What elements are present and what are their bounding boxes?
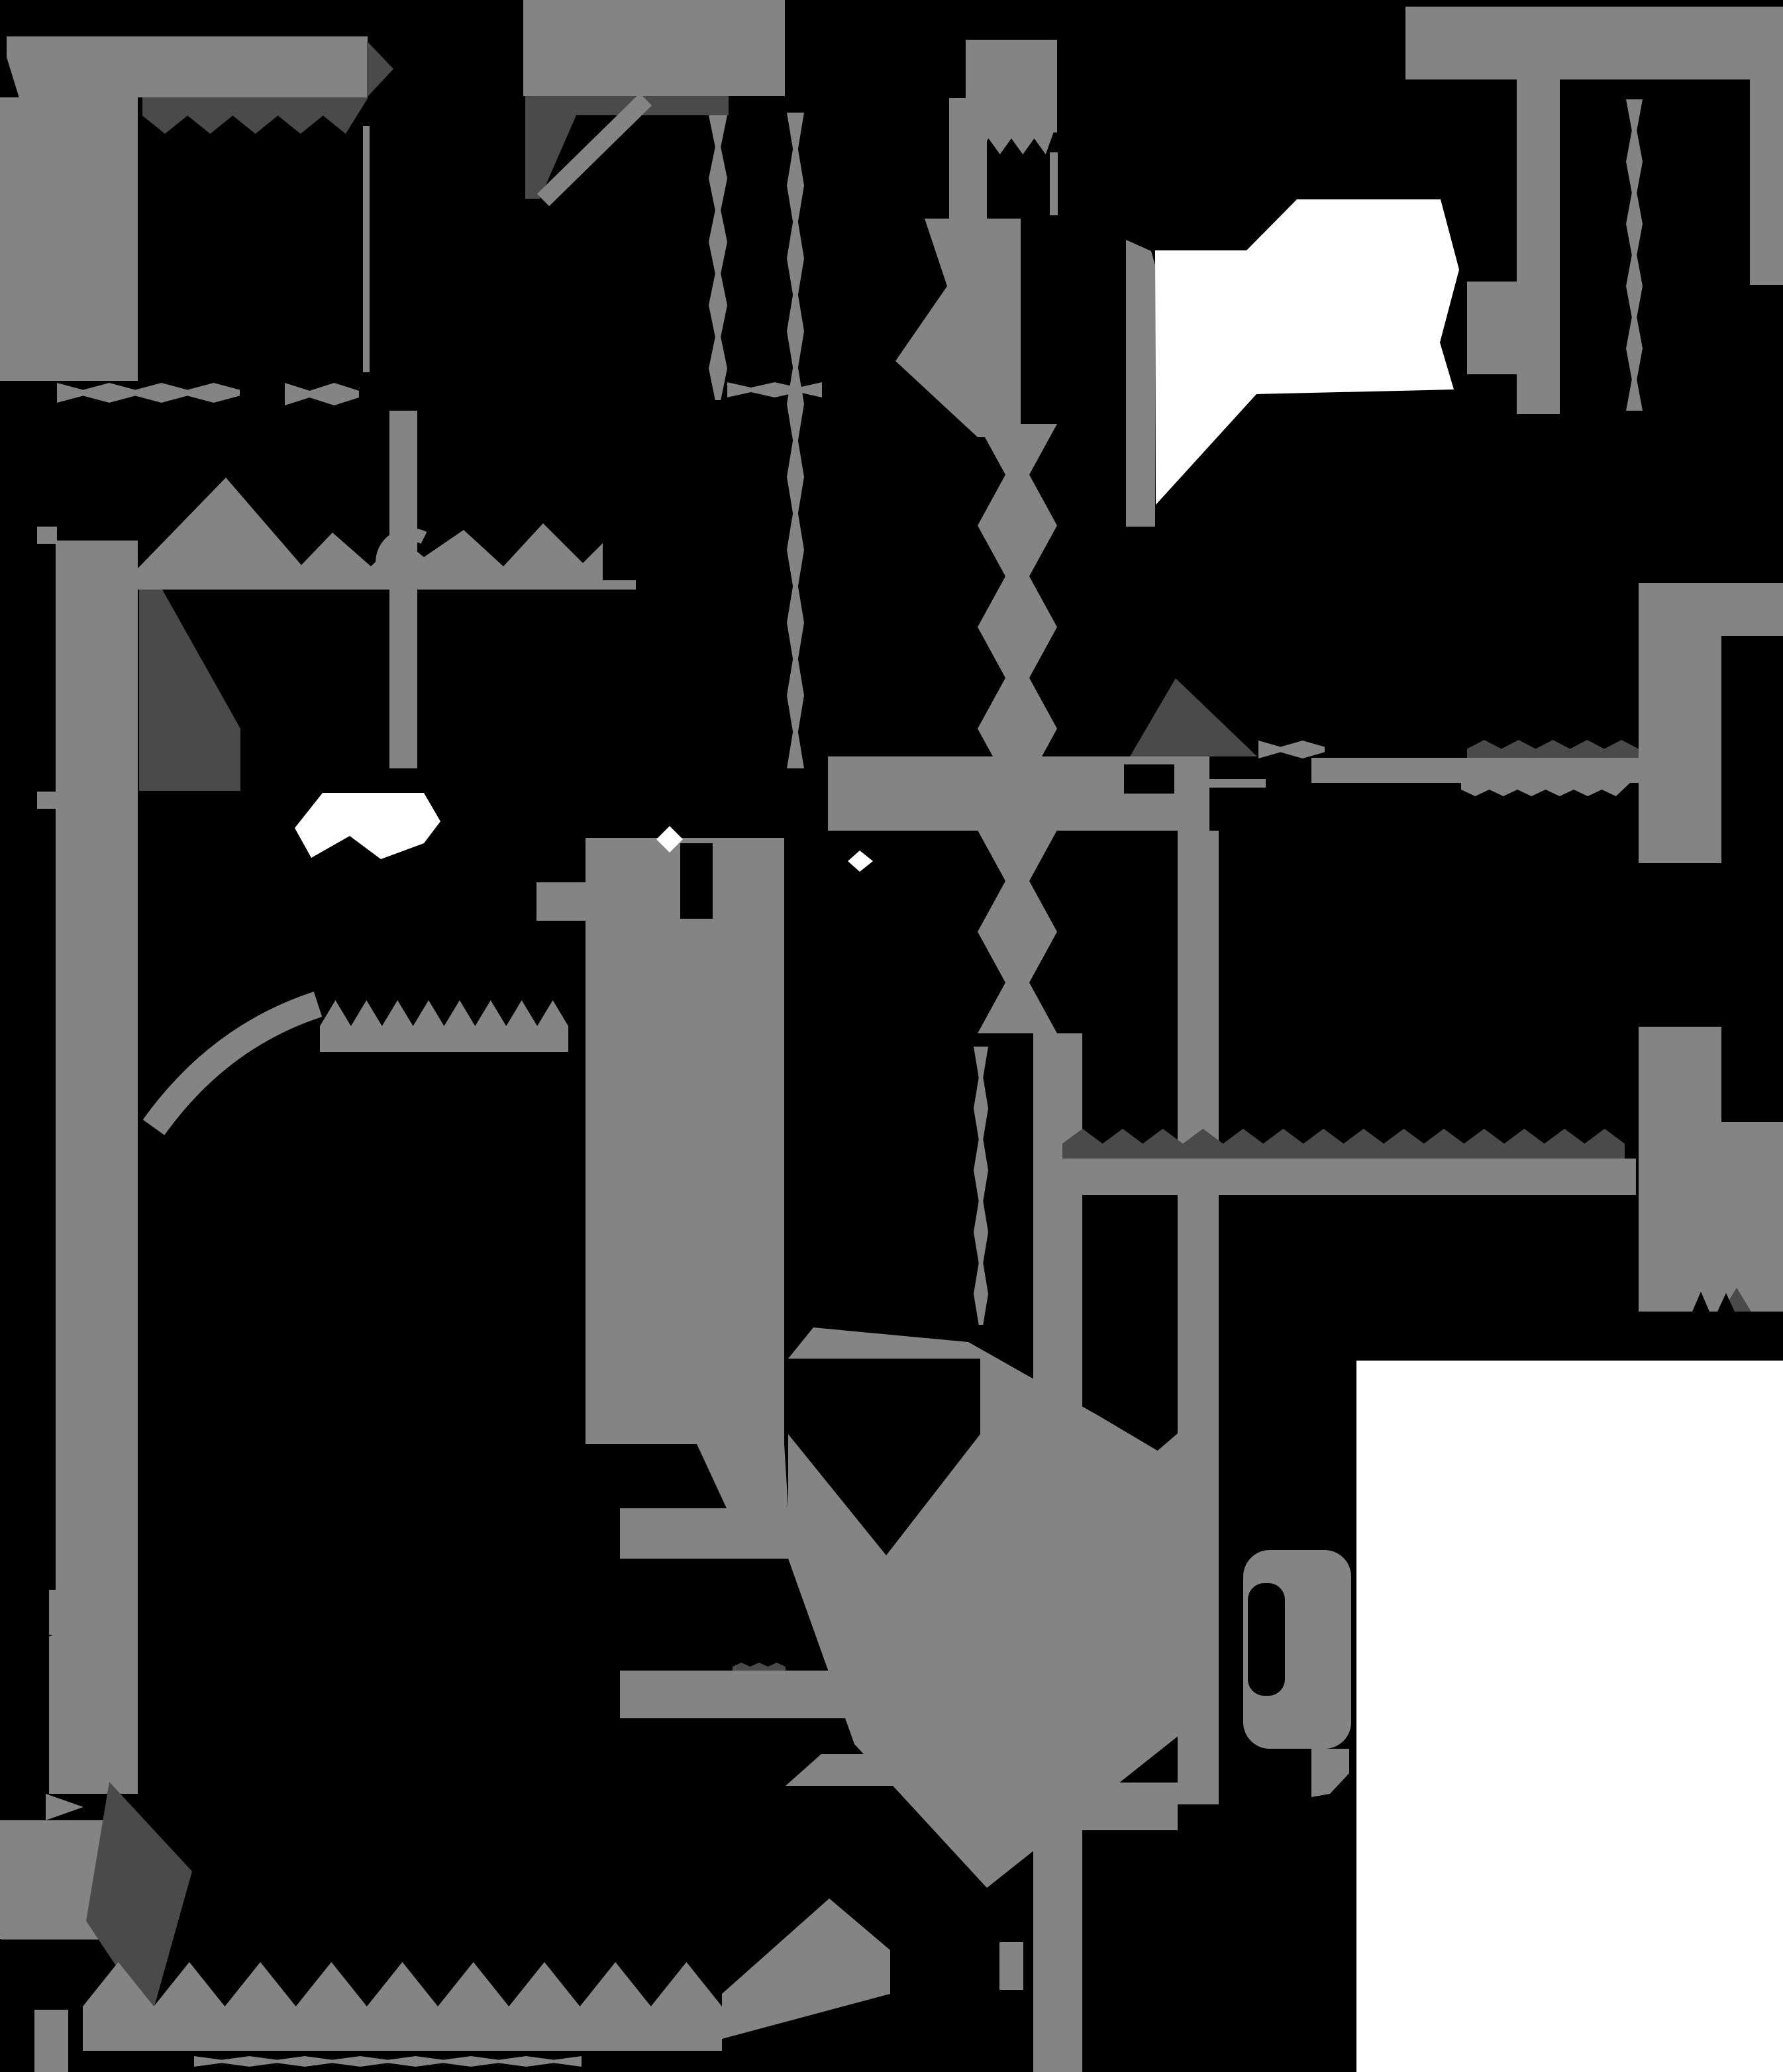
bottom-left-pier: [34, 2010, 68, 2072]
mid-bar-ticks: [733, 1663, 786, 1671]
left-wall-upper-block: [0, 97, 138, 381]
corridor-stub: [536, 882, 586, 921]
bedroom-wall: [1050, 1159, 1636, 1195]
balcony-wall: [1126, 240, 1155, 527]
balcony-pier: [1467, 282, 1537, 374]
fixture-block-hole: [1248, 1583, 1285, 1696]
left-wall-tick-1: [37, 527, 57, 544]
top-left-wall-bar: [7, 36, 368, 97]
mid-room-wall: [389, 411, 417, 768]
corridor-column: [586, 838, 784, 1444]
hall-ledge-line: [1209, 779, 1266, 788]
floor-plan-page: [0, 0, 1783, 2072]
hall-cross-wall-notch: [1124, 764, 1174, 794]
right-column-upper: [1639, 583, 1721, 863]
right-column-lower: [1639, 1027, 1721, 1122]
bath-wall: [1178, 831, 1219, 1804]
top-center-stub-line: [1050, 152, 1058, 215]
left-wall-lower: [49, 1590, 138, 1794]
bottom-wall: [83, 1962, 722, 2051]
corridor-door-recess: [680, 843, 713, 919]
bath-wall-cross-stub: [1081, 1783, 1178, 1830]
room-divider-wall: [1311, 758, 1639, 783]
top-center-stub: [966, 40, 1057, 132]
thin-wall-top-center: [363, 126, 370, 372]
floor-plan-svg: [0, 0, 1783, 2072]
top-right-wall-bar: [1405, 7, 1783, 79]
right-wall-stub: [1721, 583, 1783, 636]
white-terrace-area: [1356, 1361, 1783, 2072]
corridor-column-bar: [620, 1508, 788, 1559]
center-wall-upper: [978, 424, 1057, 1033]
bottom-stub: [999, 1942, 1023, 1990]
right-edge-wall: [1750, 79, 1783, 285]
top-center-wall-bar: [523, 0, 785, 96]
right-corner-block: [1639, 1122, 1783, 1312]
left-wall-mid: [56, 541, 138, 1590]
left-wall-tick-2: [37, 792, 57, 809]
